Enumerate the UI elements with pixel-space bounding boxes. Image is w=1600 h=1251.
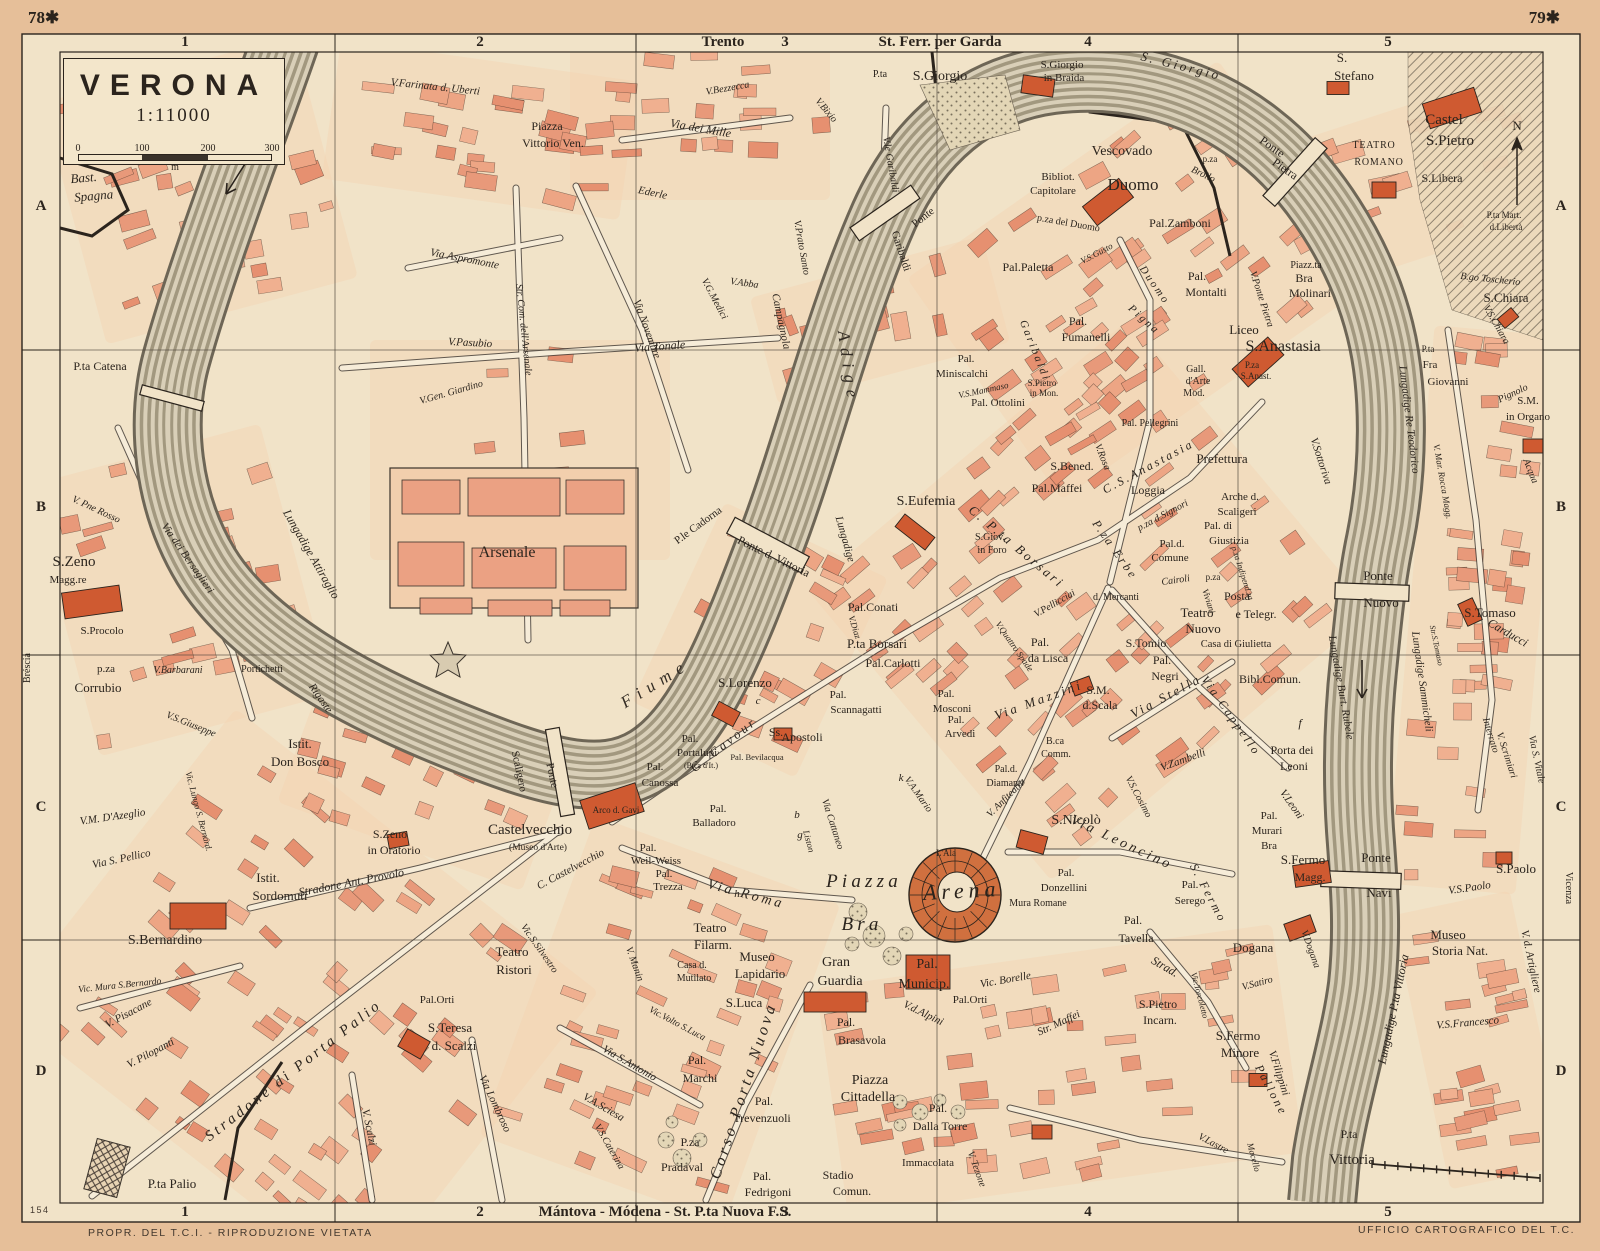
map-label: Pal. (640, 842, 657, 854)
map-label: Lapidario (735, 966, 786, 981)
map-label: Marchi (683, 1071, 718, 1085)
map-label: e Telegr. (1236, 607, 1277, 621)
map-label: in Foro (977, 545, 1006, 556)
map-label: Canossa (642, 777, 679, 789)
map-label: Piazza (531, 119, 563, 133)
map-label: Weil-Weiss (631, 855, 681, 867)
map-label: S.Giorgio (913, 69, 968, 84)
map-label: Pal.Zamboni (1149, 216, 1211, 230)
frame-destination-label: Trento (702, 34, 745, 50)
map-label: Giovanni (1428, 376, 1469, 388)
map-label: Pal.Maffei (1032, 481, 1083, 495)
map-label: Ristori (496, 962, 532, 977)
map-label: V.Pasubio (448, 336, 493, 350)
map-label: Donzellini (1041, 882, 1087, 894)
map-label: Mod. (1183, 388, 1204, 399)
map-label: P.ta (1340, 1127, 1358, 1141)
map-label: c (756, 695, 761, 707)
map-label: Bréscia (22, 652, 33, 683)
map-label: S.Paolo (1496, 861, 1536, 876)
grid-col-number: 4 (1084, 1204, 1092, 1220)
map-label: ROMANO (1354, 157, 1403, 168)
map-label: Loggia (1131, 483, 1166, 497)
map-label: Trezza (653, 881, 683, 893)
map-label: Vescovado (1092, 144, 1153, 159)
map-label: Mutilato (677, 973, 711, 984)
left-page-number: 78✱ (28, 8, 59, 28)
map-label: Gran (822, 955, 850, 970)
map-label: Balladoro (692, 817, 736, 829)
map-label: P.ta Palio (148, 1176, 196, 1191)
map-label: Fumanelli (1062, 330, 1111, 344)
scale-tick: 0 (76, 143, 81, 154)
map-label: S.Pietro (1426, 133, 1474, 149)
map-label: p.za (1206, 572, 1221, 582)
map-label: Pal. (929, 1101, 947, 1115)
map-label: Pal. (682, 733, 699, 745)
map-label: Filarm. (694, 937, 732, 952)
north-label: N (1512, 118, 1522, 133)
map-label: Magg.re (50, 574, 87, 586)
map-label: Arena (920, 876, 1000, 905)
map-label: Pal.d. (995, 764, 1018, 775)
map-label: S.Lorenzo (718, 675, 772, 690)
map-label: S.Bened. (1050, 459, 1093, 473)
map-label: Bra (841, 914, 882, 935)
map-label: Municip. (899, 977, 950, 992)
grid-row-letter: A (36, 198, 47, 214)
map-label: Portichetti (241, 664, 283, 675)
map-label: P.za (1245, 360, 1259, 370)
map-label: Negri (1151, 669, 1179, 683)
map-label: Gall. (1186, 364, 1206, 375)
map-label: Pal. (1153, 653, 1171, 667)
map-label: TEATRO (1352, 140, 1395, 151)
map-label: Nuovo (1185, 621, 1220, 636)
map-label: Pal. (938, 688, 955, 700)
map-label: Miniscalchi (936, 368, 988, 380)
map-label: Teatro (1180, 605, 1213, 620)
grid-col-number: 1 (181, 1204, 189, 1220)
map-label: Pal. (656, 868, 673, 880)
map-label: Castel (1425, 112, 1463, 128)
grid-row-letter: C (1556, 799, 1567, 815)
grid-col-number: 2 (476, 34, 484, 50)
map-label: h (734, 888, 740, 900)
map-label: Pal.Orti (420, 994, 455, 1006)
map-label: Incarn. (1143, 1013, 1177, 1027)
map-label: Leoni (1280, 759, 1309, 773)
map-label: Pal. (753, 1169, 771, 1183)
map-canvas: 1122334455AABBCCDDTrentoSt. Ferr. per Ga… (0, 0, 1600, 1251)
map-label: Pal. (1188, 269, 1206, 283)
map-label: in Braida (1044, 72, 1085, 84)
map-label: Pal. (647, 761, 664, 773)
map-label: Duomo (1108, 175, 1159, 194)
map-label: Cittadella (841, 1090, 896, 1105)
map-label: Immacolata (902, 1157, 954, 1169)
map-scale: 1:11000 (64, 105, 284, 127)
right-page-number: 79✱ (1529, 8, 1560, 28)
map-label: Pal. (916, 957, 937, 972)
map-label: p.za (97, 663, 115, 675)
grid-row-letter: A (1556, 198, 1567, 214)
map-label: d.Libertà (1490, 222, 1523, 232)
map-label: Pal. (710, 803, 727, 815)
map-label: S.Tomaso (1464, 605, 1515, 620)
grid-row-letter: B (36, 499, 46, 515)
map-label: Montalti (1185, 285, 1227, 299)
plate-number: 154 (30, 1205, 50, 1215)
map-label: d.Scala (1083, 698, 1119, 712)
map-label: Museo (1430, 927, 1465, 942)
map-label: Scannagatti (830, 704, 881, 716)
grid-col-number: 3 (781, 34, 789, 50)
map-label: Prefettura (1196, 451, 1247, 466)
grid-col-number: 4 (1084, 34, 1092, 50)
scale-tick: 300 (265, 143, 280, 154)
map-label: Pal. (1124, 913, 1142, 927)
map-label: Scaligeri (1217, 506, 1256, 518)
map-label: S.Luca (726, 995, 763, 1010)
map-label: Storia Nat. (1432, 943, 1488, 958)
map-label: S.Nicolò (1051, 813, 1100, 828)
map-label: Arche d. (1221, 491, 1259, 503)
map-label: Casa di Giulietta (1201, 639, 1272, 650)
map-label: Tavella (1118, 931, 1154, 945)
map-label: Pal. (755, 1094, 773, 1108)
scale-unit: m (78, 162, 272, 173)
map-label: Piazz.ta (1290, 260, 1322, 271)
map-label: Mura Romane (1009, 898, 1067, 909)
map-label: Pal. (958, 353, 975, 365)
map-label: b (794, 809, 800, 821)
map-label: in Organo (1506, 411, 1551, 423)
map-label: Minore (1221, 1045, 1260, 1060)
scale-tick: 200 (200, 143, 215, 154)
scale-bar: 0 100 200 300 m (78, 143, 272, 173)
map-label: S.Libera (1422, 171, 1464, 185)
map-label: Bra (1261, 840, 1277, 852)
map-label: Arsenale (479, 544, 536, 561)
map-label: Nuovo (1363, 595, 1398, 610)
map-label: S. (1337, 50, 1347, 65)
frame-destination-label: St. Ferr. per Garda (879, 34, 1002, 50)
map-label: Castelvecchio (488, 822, 572, 838)
map-label: V.Barbarani (154, 665, 203, 676)
grid-col-number: 5 (1384, 1204, 1392, 1220)
map-page: { "page": { "left_page_num": "78✱", "rig… (0, 0, 1600, 1251)
map-label: d. Mercanti (1093, 592, 1139, 603)
map-label: Bibliot. (1041, 171, 1075, 183)
map-label: Comun. (833, 1184, 871, 1198)
map-label: Teatro (495, 944, 528, 959)
map-label: Pal. (688, 1053, 706, 1067)
map-label: P.ta (873, 69, 888, 80)
map-label: Casa d. (677, 960, 706, 971)
map-label: Pal. Pellegrini (1122, 418, 1179, 429)
map-label: Fra (1423, 359, 1438, 371)
map-label: Pal. (1031, 635, 1049, 649)
map-label: S.Giorgio (1041, 59, 1084, 71)
map-label: S.Anast. (1241, 371, 1272, 381)
map-label: Murari (1252, 825, 1283, 837)
map-label: P.ta Mart. (1487, 210, 1522, 220)
map-label: Pal. (948, 714, 965, 726)
map-label: Pal. (1058, 867, 1075, 879)
map-label: Pal.Paletta (1003, 260, 1055, 274)
map-title: VERONA (64, 69, 284, 103)
map-label: Comune (1151, 552, 1188, 564)
map-label: Guardia (817, 974, 863, 989)
map-label: P.za (681, 1135, 701, 1149)
map-label: Stefano (1334, 68, 1374, 83)
map-label: Navi (1366, 885, 1392, 900)
map-label: P.ta (1422, 344, 1435, 354)
map-label: Don Bosco (271, 754, 329, 769)
map-label: Teatro (693, 920, 726, 935)
grid-row-letter: C (36, 799, 47, 815)
map-label: S.Fermo (1281, 852, 1325, 867)
map-label: Vicenza (1563, 872, 1574, 905)
map-label: S.Zeno (53, 554, 96, 570)
map-label: in Oratorio (368, 843, 421, 857)
map-label: Giustizia (1209, 535, 1249, 547)
grid-col-number: 1 (181, 34, 189, 50)
map-label: P.ta Catena (73, 359, 127, 373)
map-label: S.Fermo (1216, 1028, 1260, 1043)
map-label: Pal. (837, 1015, 855, 1029)
map-label: L'Ala (936, 848, 956, 858)
map-label: Trevenzuoli (733, 1111, 791, 1125)
map-label: Fedrigoni (745, 1185, 792, 1199)
map-label: Porta dei (1271, 743, 1315, 757)
map-label: Serego (1175, 895, 1206, 907)
map-label: Museo (739, 949, 774, 964)
grid-row-letter: D (1556, 1063, 1567, 1079)
map-label: Vittorio Ven. (522, 136, 584, 150)
map-label: Arvedi (945, 728, 976, 740)
scale-tick: 100 (135, 143, 150, 154)
map-label: Pal. (1261, 810, 1278, 822)
map-label: Arco d. Gavi (593, 805, 640, 815)
map-label: Pal. Bevilacqua (730, 752, 784, 762)
map-label: S.Pietro (1139, 997, 1177, 1011)
map-label: Brasavola (838, 1033, 887, 1047)
map-label: S.Zeno (373, 827, 407, 841)
map-label: Bibl.Comun. (1239, 672, 1301, 686)
grid-row-letter: B (1556, 499, 1566, 515)
map-label: Istit. (256, 870, 279, 885)
map-label: d. Scalzi (432, 1038, 477, 1053)
map-label: Ponte (1363, 568, 1393, 583)
map-label: Istit. (288, 736, 311, 751)
map-label: Dalla Torre (913, 1119, 968, 1133)
map-label: Piazza (852, 1073, 889, 1088)
map-label: Pradaval (661, 1160, 704, 1174)
map-label: Pal. Ottolini (971, 397, 1025, 409)
map-label: Liceo (1229, 322, 1259, 337)
cartographer-credit: UFFICIO CARTOGRAFICO DEL T.C. (1358, 1224, 1575, 1236)
scale-bar-rule (78, 154, 272, 161)
map-label: Stadio (823, 1168, 854, 1182)
map-label: Pal.d. (1159, 538, 1184, 550)
grid-col-number: 5 (1384, 34, 1392, 50)
map-label: Capitolare (1030, 185, 1076, 197)
map-label: Molinari (1289, 286, 1332, 300)
map-label: p.za (1203, 154, 1218, 164)
map-label: Bra (1295, 271, 1313, 285)
map-label: Magg. (1295, 870, 1326, 884)
map-label: Dogana (1233, 940, 1274, 955)
map-label: (Museo d'Arte) (509, 842, 567, 853)
map-label: Pal.Orti (953, 994, 988, 1006)
map-label: Apostoli (781, 730, 823, 744)
map-label: Pal.Carlotti (866, 656, 922, 670)
map-label: Comm. (1041, 749, 1071, 760)
title-panel: VERONA 1:11000 0 100 200 300 m (63, 58, 285, 165)
map-label: Pal. di (1204, 520, 1232, 532)
map-label: Ponte (1361, 850, 1391, 865)
copyright-credit: PROPR. DEL T.C.I. - RIPRODUZIONE VIETATA (88, 1227, 373, 1239)
map-label: in Mon. (1030, 388, 1059, 398)
map-label: da Lisca (1028, 651, 1069, 665)
map-label: S.Eufemia (897, 494, 956, 509)
map-label: S.Bernardino (128, 933, 202, 948)
map-label: Corrubio (75, 680, 122, 695)
map-label: Pal. (830, 689, 847, 701)
map-label: S.Procolo (80, 625, 124, 637)
map-label: S.Tomio (1126, 636, 1167, 650)
map-label: d'Arte (1186, 376, 1211, 387)
frame-destination-label: Mántova - Módena - St. P.ta Nuova F.S. (539, 1204, 792, 1220)
map-label: S.Anastasia (1245, 338, 1320, 355)
map-label: S.M. (1517, 395, 1539, 407)
map-label: Pal.Conati (848, 600, 899, 614)
map-label: Vittoria (1329, 1152, 1375, 1168)
grid-row-letter: D (36, 1063, 47, 1079)
map-label: B.ca (1046, 736, 1065, 747)
map-label: S.Teresa (428, 1020, 472, 1035)
map-label: S.M. (1086, 683, 1109, 697)
map-label: Piazza (825, 871, 902, 892)
map-label: Posta (1224, 589, 1251, 603)
map-label: Pal. (1069, 314, 1087, 328)
grid-col-number: 2 (476, 1204, 484, 1220)
